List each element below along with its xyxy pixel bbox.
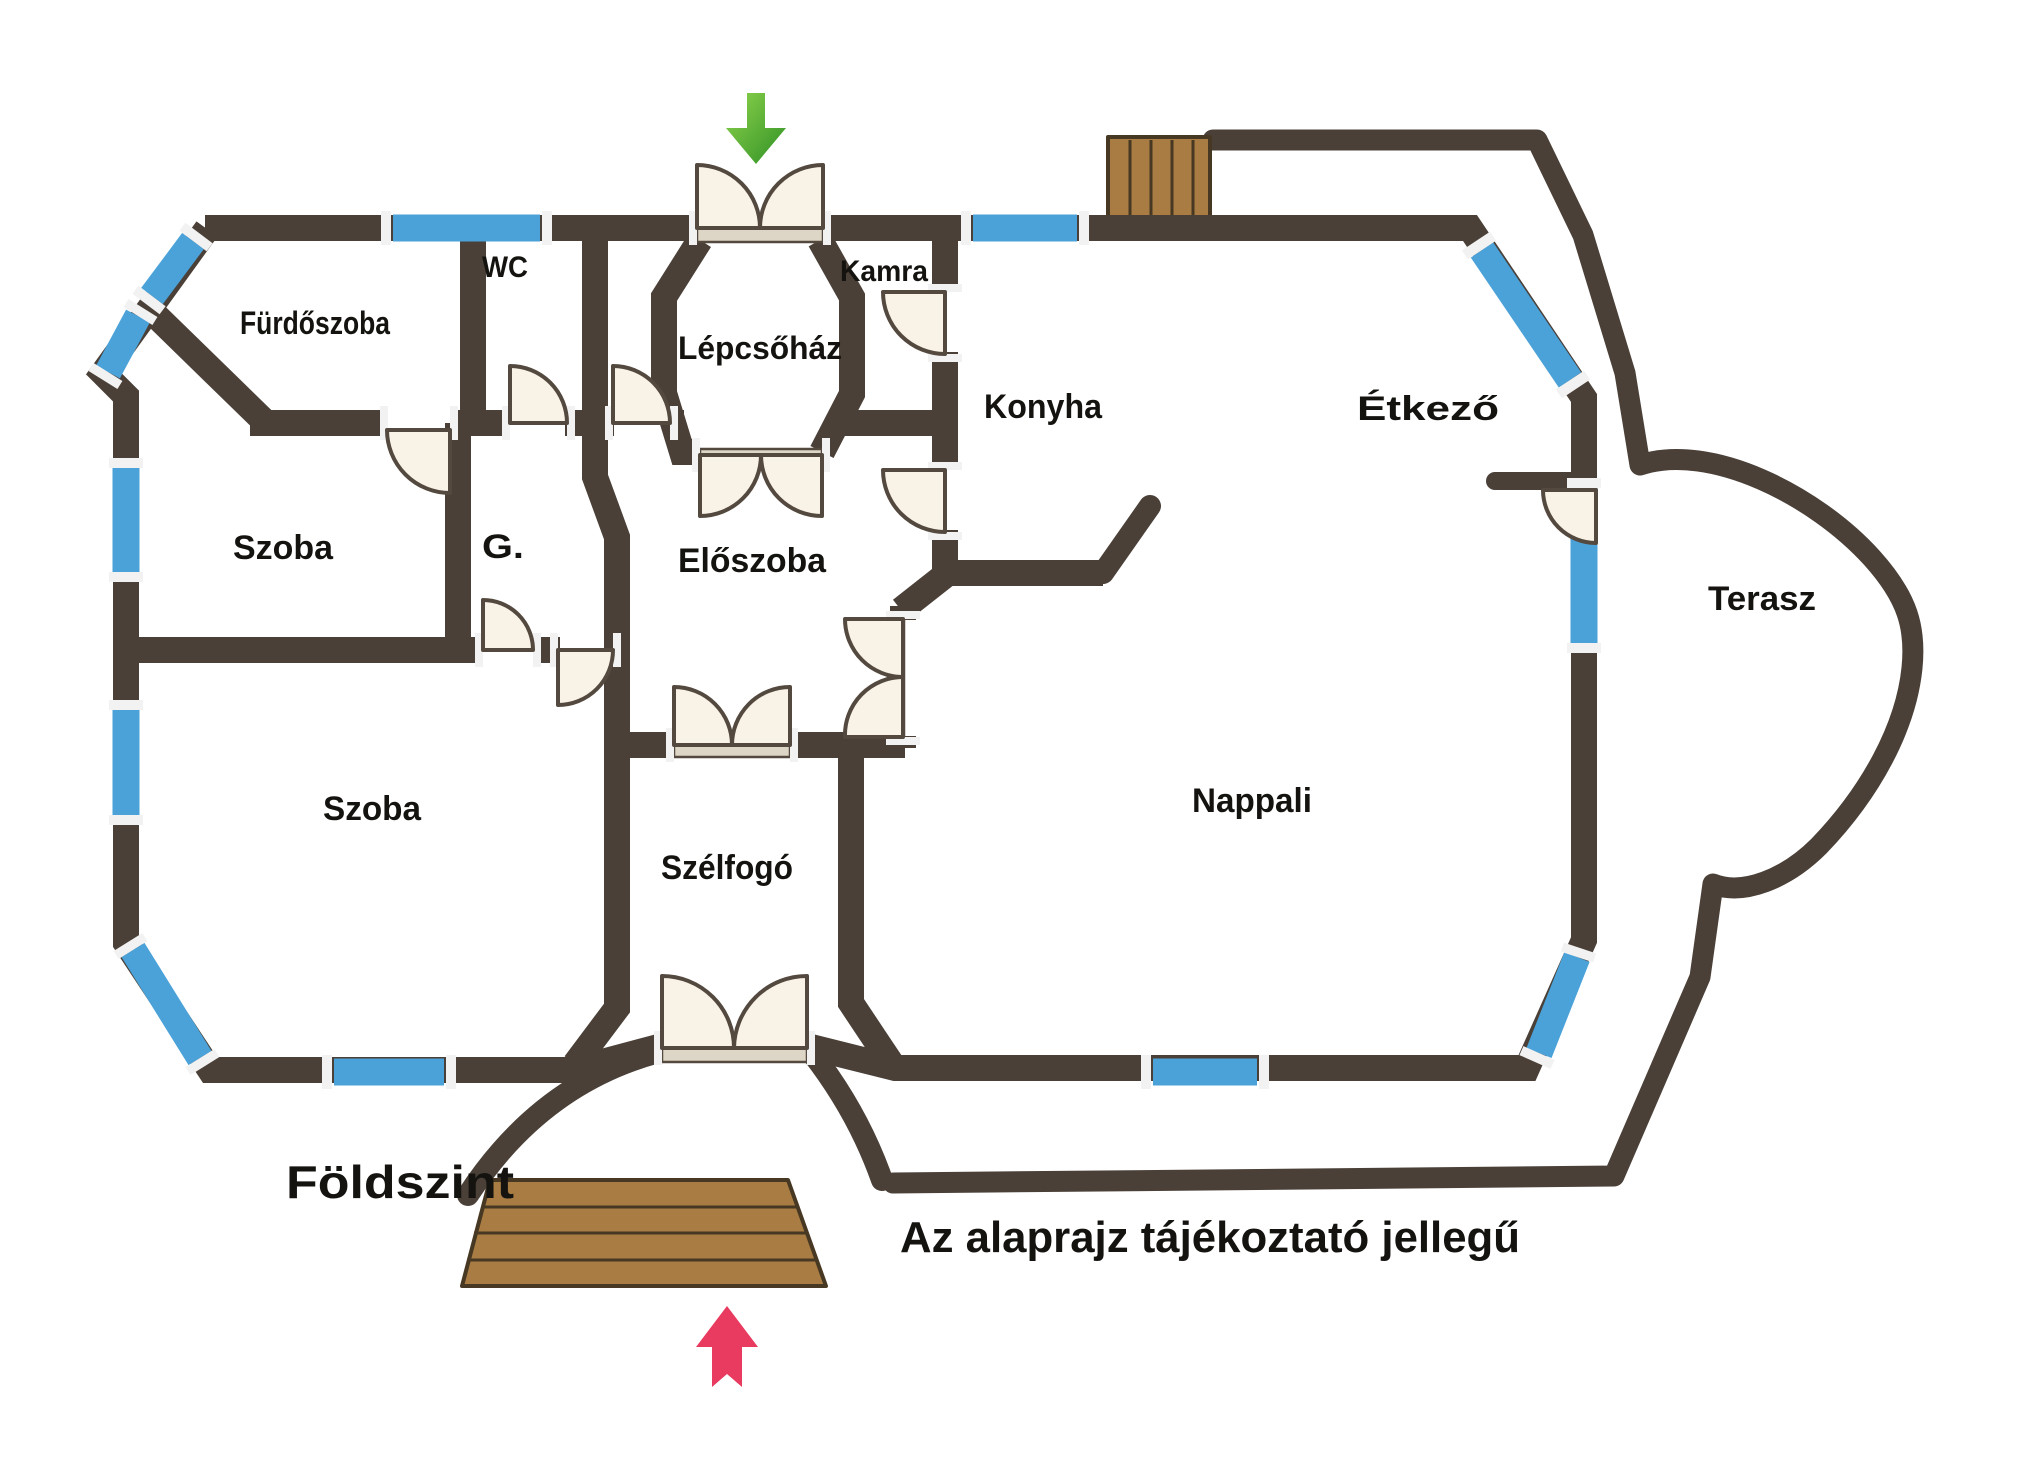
window-bay-nw-1: [152, 241, 193, 296]
terrace-wall: [893, 140, 1913, 1183]
floor-plan-page: Fürdőszoba WC Kamra Lépcsőház Konyha Étk…: [0, 0, 2020, 1460]
room-label-kamra: Kamra: [840, 255, 928, 288]
door-kamra: [883, 292, 945, 354]
room-label-nappali: Nappali: [1192, 782, 1312, 820]
door-lepcsohaz-right: [761, 455, 822, 516]
door-terasz: [1543, 490, 1596, 543]
door-nappali-bottom: [845, 677, 903, 737]
terrace-outline: [893, 140, 1913, 1183]
door-szoba-felso: [387, 430, 450, 493]
door-wc: [510, 366, 567, 423]
floor-plan: Fürdőszoba WC Kamra Lépcsőház Konyha Étk…: [0, 0, 2020, 1460]
door-szelfogo-exit-right: [734, 976, 807, 1048]
top-steps-wood: [1108, 137, 1210, 221]
room-label-lepcsohaz: Lépcsőház: [678, 330, 842, 366]
room-label-wc: WC: [482, 251, 528, 284]
doors: [387, 165, 1596, 1048]
room-label-szoba-also: Szoba: [323, 790, 422, 828]
window-bay-nw-2: [108, 316, 138, 372]
green-arrow-down-icon: [726, 93, 786, 164]
red-arrow-shape: [696, 1306, 758, 1387]
red-arrow-up-icon: [696, 1306, 758, 1387]
room-label-eloszoba: Előszoba: [678, 542, 827, 580]
door-szelfogo-exit-left: [662, 976, 734, 1048]
room-label-furdoszoba: Fürdőszoba: [240, 305, 390, 341]
door-konyha: [883, 470, 945, 532]
room-label-gardrob: G.: [482, 528, 524, 566]
room-label-terasz: Terasz: [1708, 580, 1816, 618]
door-nappali-top: [845, 619, 903, 677]
bottom-steps: [462, 1180, 826, 1286]
room-label-szoba-felso: Szoba: [233, 529, 334, 567]
door-lepcsohaz-left: [700, 455, 761, 516]
green-arrow-shape: [726, 93, 786, 164]
wall-szelfogo-east: [851, 745, 893, 1066]
wall-eloszoba-east: [901, 573, 948, 748]
room-label-konyha: Konyha: [984, 388, 1103, 426]
door-szelfogo-top-left: [674, 687, 732, 745]
plan-note: Az alaprajz tájékoztató jellegű: [900, 1213, 1520, 1262]
window-etkezo-ne: [1482, 250, 1570, 380]
plan-title: Földszint: [286, 1156, 514, 1208]
door-main-entrance-right: [760, 165, 823, 228]
room-label-etkezo: Étkező: [1357, 390, 1499, 428]
wall-szoba-szelfogo: [575, 228, 617, 1064]
window-bay-sw: [133, 950, 200, 1058]
window-nappali-se: [1539, 957, 1577, 1053]
door-gardrob: [483, 600, 533, 650]
top-steps: [1108, 137, 1210, 221]
wall-konyha-diagonal-stub: [1103, 506, 1150, 573]
door-szelfogo-top-right: [732, 687, 790, 745]
door-main-entrance-left: [697, 165, 760, 228]
wall-east-south: [807, 643, 1584, 1068]
room-label-szelfogo: Szélfogó: [661, 849, 793, 887]
